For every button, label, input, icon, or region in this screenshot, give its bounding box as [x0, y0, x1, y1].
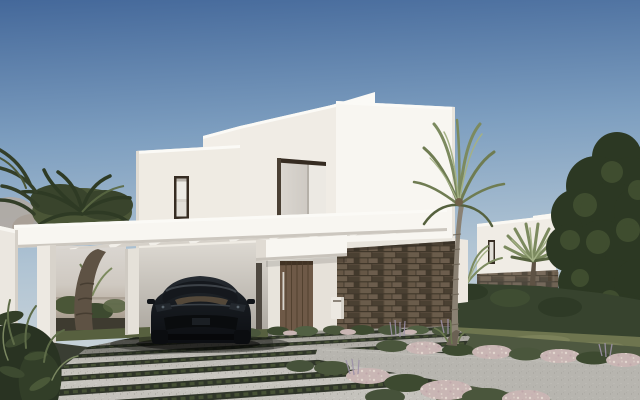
car-splitter	[156, 334, 246, 340]
car-wheel-right	[234, 330, 250, 344]
render-canvas	[0, 0, 640, 400]
door-handle	[283, 272, 285, 310]
neighbor-window-glass	[490, 242, 494, 262]
car-mirror-right	[247, 299, 255, 304]
entrance-canopy	[256, 235, 347, 267]
pergola-post-inner	[125, 248, 139, 335]
car-wheel-left	[152, 330, 168, 344]
mailbox-bollard	[331, 297, 344, 319]
car-mirror-left	[147, 299, 155, 304]
car-plate	[192, 318, 210, 325]
upper-window	[174, 176, 189, 219]
wall-recess	[256, 263, 262, 331]
door-pier	[313, 259, 339, 333]
front-door	[280, 261, 313, 332]
